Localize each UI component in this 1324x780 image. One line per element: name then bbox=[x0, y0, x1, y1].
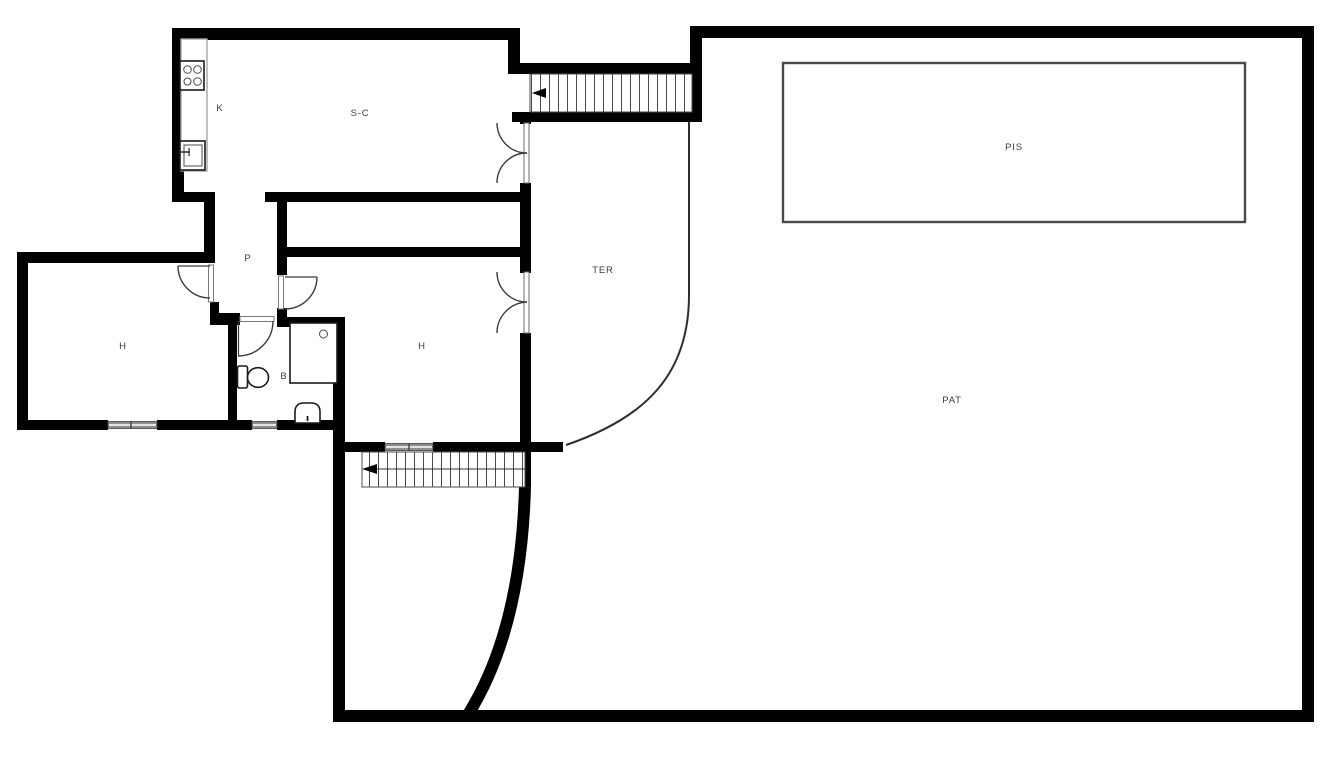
wall-bedroom-middle-bottom-b bbox=[433, 442, 531, 452]
wall-living-right-a bbox=[520, 112, 531, 124]
sink-basin bbox=[184, 145, 202, 166]
wall-outer-bottom bbox=[333, 710, 1314, 722]
room-label-terrace: TER bbox=[592, 265, 613, 276]
wall-patio-left bbox=[333, 420, 345, 722]
wall-outer-right bbox=[1302, 26, 1314, 722]
wall-stairs-bottom bbox=[512, 112, 700, 122]
wall-hall-right-a bbox=[277, 202, 287, 275]
door-arc bbox=[497, 272, 527, 302]
toilet-bowl bbox=[248, 368, 269, 388]
door-arc bbox=[497, 153, 527, 183]
double-door-icon bbox=[497, 272, 529, 333]
wall-bedroom-middle-bottom-a bbox=[333, 442, 385, 452]
stairs-top bbox=[530, 74, 692, 112]
door-icon bbox=[238, 317, 274, 357]
floor-plan-svg: K S-C P H H B TER PIS PAT bbox=[0, 0, 1324, 780]
burner bbox=[184, 78, 191, 85]
toilet-tank bbox=[238, 366, 248, 388]
wall-stairs-top bbox=[508, 63, 692, 74]
wall-bedroom-left-left bbox=[17, 252, 28, 430]
door-arc bbox=[497, 123, 527, 153]
wall-outer-top bbox=[690, 26, 1314, 38]
door-arc bbox=[497, 302, 527, 333]
wall-bottom-a bbox=[17, 420, 108, 430]
double-door-icon bbox=[497, 123, 529, 183]
wall-living-bottom bbox=[265, 192, 531, 202]
door-jamb bbox=[240, 317, 274, 322]
kitchen-fixtures bbox=[180, 39, 207, 171]
door-arc bbox=[178, 266, 210, 298]
room-label-living-dining: S-C bbox=[351, 108, 370, 119]
stairs-top-treads bbox=[530, 74, 692, 112]
wall-bottom-b bbox=[157, 420, 252, 430]
door-jamb bbox=[209, 265, 214, 302]
terrace-boundary-line bbox=[566, 122, 689, 445]
wall-stairs2-right bbox=[531, 442, 563, 452]
door-arc bbox=[285, 277, 317, 309]
stairs-bottom bbox=[362, 452, 525, 487]
room-label-patio: PAT bbox=[942, 395, 961, 406]
door-icon bbox=[178, 265, 214, 302]
stove-icon bbox=[180, 61, 204, 90]
door-arc bbox=[238, 321, 273, 356]
shower-icon bbox=[290, 323, 337, 383]
wall-bedroom-middle-top bbox=[277, 247, 531, 257]
wall-bath-left bbox=[228, 325, 237, 420]
room-label-pool: PIS bbox=[1005, 142, 1023, 153]
shower-tray bbox=[290, 323, 337, 383]
wall-bedroom-left-top bbox=[17, 252, 215, 263]
shower-drain-icon bbox=[320, 330, 328, 338]
room-label-hallway: P bbox=[244, 253, 251, 264]
room-label-bathroom: B bbox=[280, 371, 287, 382]
toilet-icon bbox=[238, 366, 269, 388]
wall-top-living bbox=[172, 28, 520, 40]
door-icon bbox=[279, 276, 318, 309]
room-label-bedroom-left: H bbox=[119, 341, 127, 352]
floor-plan-page: K S-C P H H B TER PIS PAT bbox=[0, 0, 1324, 780]
burner bbox=[184, 66, 192, 74]
door-jamb bbox=[279, 276, 284, 309]
room-label-bedroom-middle: H bbox=[418, 341, 426, 352]
burner bbox=[194, 78, 202, 86]
room-label-kitchen: K bbox=[216, 103, 223, 114]
wall-curved bbox=[469, 487, 525, 713]
wall-bath-topleft bbox=[210, 313, 240, 325]
kitchen-sink-icon bbox=[180, 141, 205, 170]
stove-outline bbox=[180, 61, 204, 90]
washbasin-icon bbox=[295, 403, 320, 423]
burner bbox=[194, 66, 202, 74]
